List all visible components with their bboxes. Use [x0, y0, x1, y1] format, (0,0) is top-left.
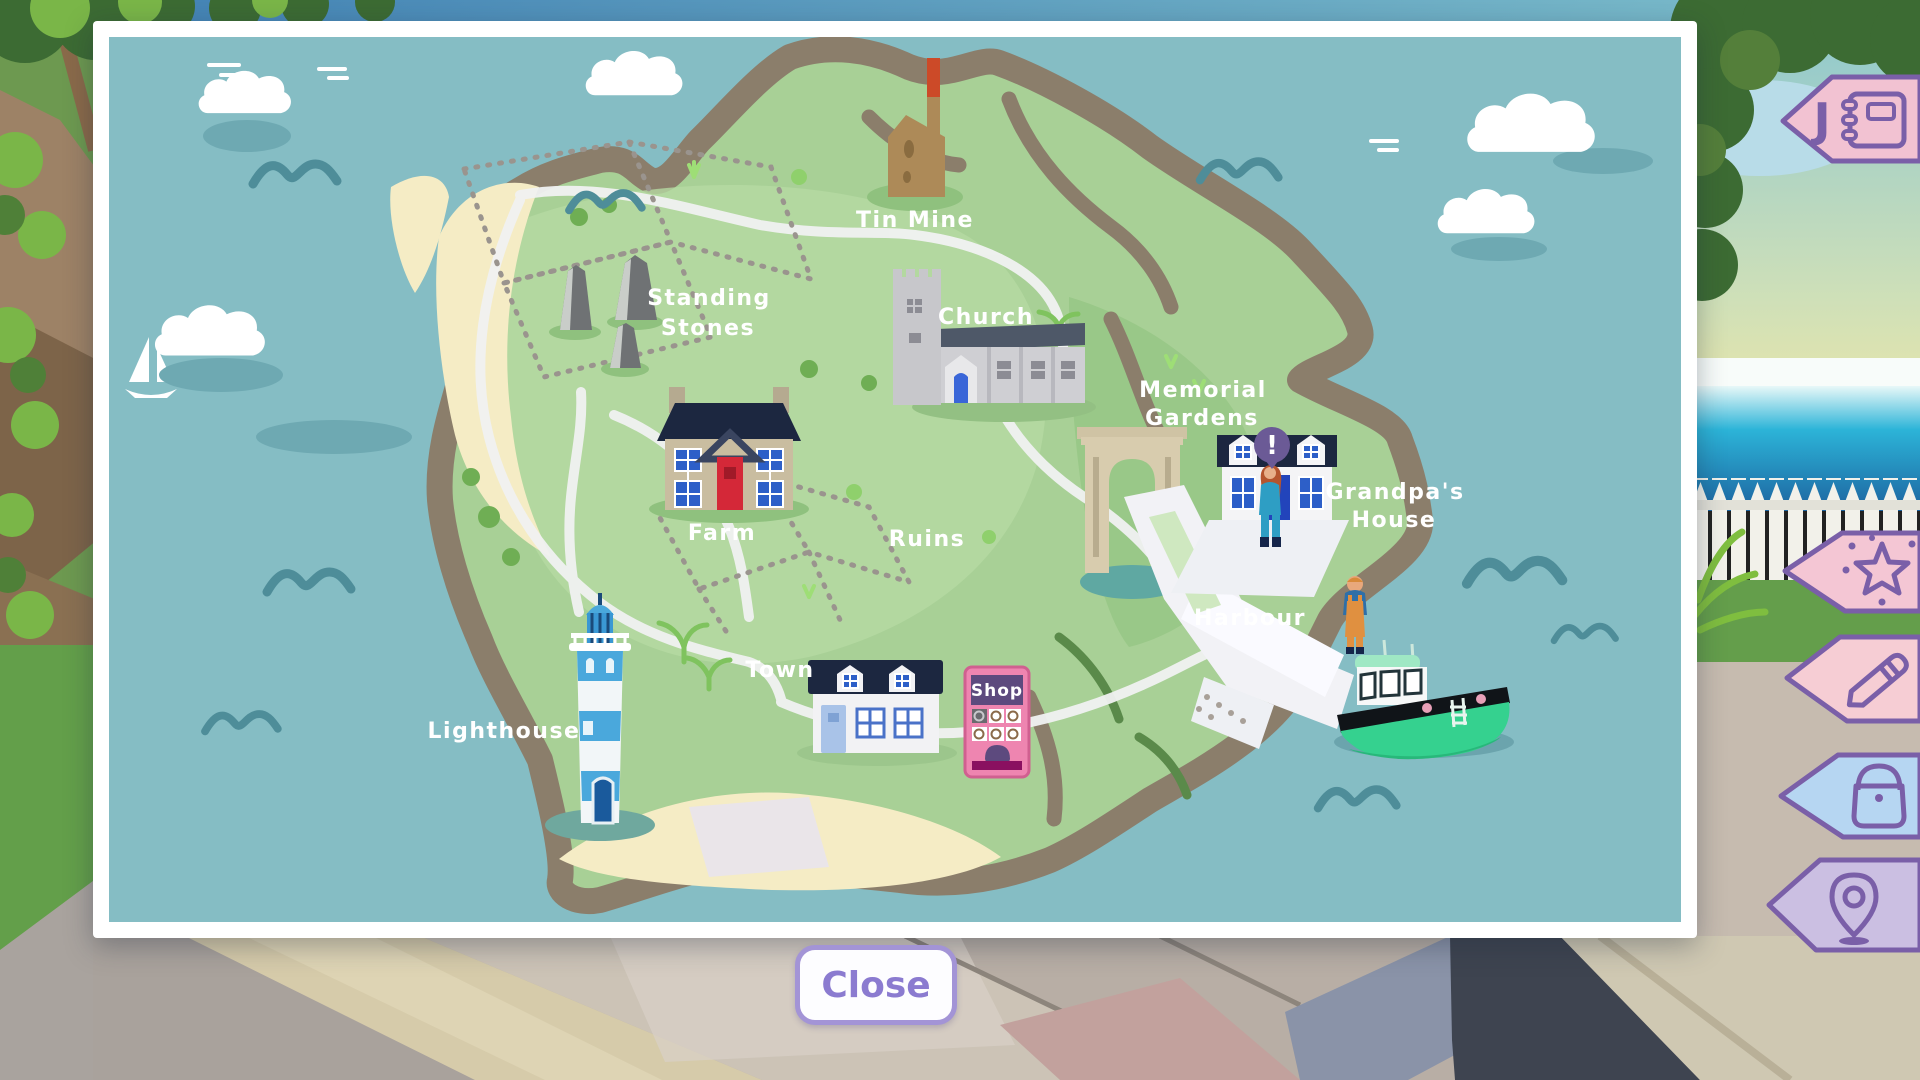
shop: Shop	[965, 667, 1029, 777]
harbour-label: Harbour	[1194, 606, 1306, 631]
lighthouse-label: Lighthouse	[428, 719, 581, 744]
journal-letter: J	[1810, 93, 1830, 147]
game-screen: Tin Mine Standing Stones	[0, 0, 1920, 1080]
farm-label: Farm	[688, 521, 756, 546]
town-label: Town	[745, 658, 814, 683]
island-map: Tin Mine Standing Stones	[109, 37, 1681, 922]
map-panel: Tin Mine Standing Stones	[93, 21, 1697, 938]
close-button-label: Close	[821, 965, 930, 1006]
shop-label: Shop	[971, 681, 1023, 701]
achievements-tab[interactable]	[1782, 528, 1920, 616]
quest-marker-exclamation: !	[1266, 431, 1278, 461]
close-button[interactable]: Close	[795, 945, 957, 1025]
map-tab[interactable]	[1766, 855, 1920, 955]
tin-mine-label: Tin Mine	[856, 208, 974, 233]
inventory-tab[interactable]	[1778, 750, 1920, 842]
notes-tab[interactable]	[1784, 632, 1920, 726]
church-label: Church	[938, 305, 1034, 330]
grandpas-house-label-1: Grandpa's	[1325, 480, 1464, 505]
ruins-label: Ruins	[889, 527, 965, 552]
grandpas-house-label-2: House	[1352, 508, 1437, 533]
memorial-gardens-label-1: Memorial	[1139, 378, 1267, 403]
standing-stones-label-2: Stones	[661, 316, 755, 341]
journal-tab[interactable]: J	[1780, 72, 1920, 166]
memorial-gardens-label-2: Gardens	[1145, 406, 1259, 431]
patio	[93, 936, 1920, 1080]
standing-stones-label-1: Standing	[647, 286, 771, 311]
